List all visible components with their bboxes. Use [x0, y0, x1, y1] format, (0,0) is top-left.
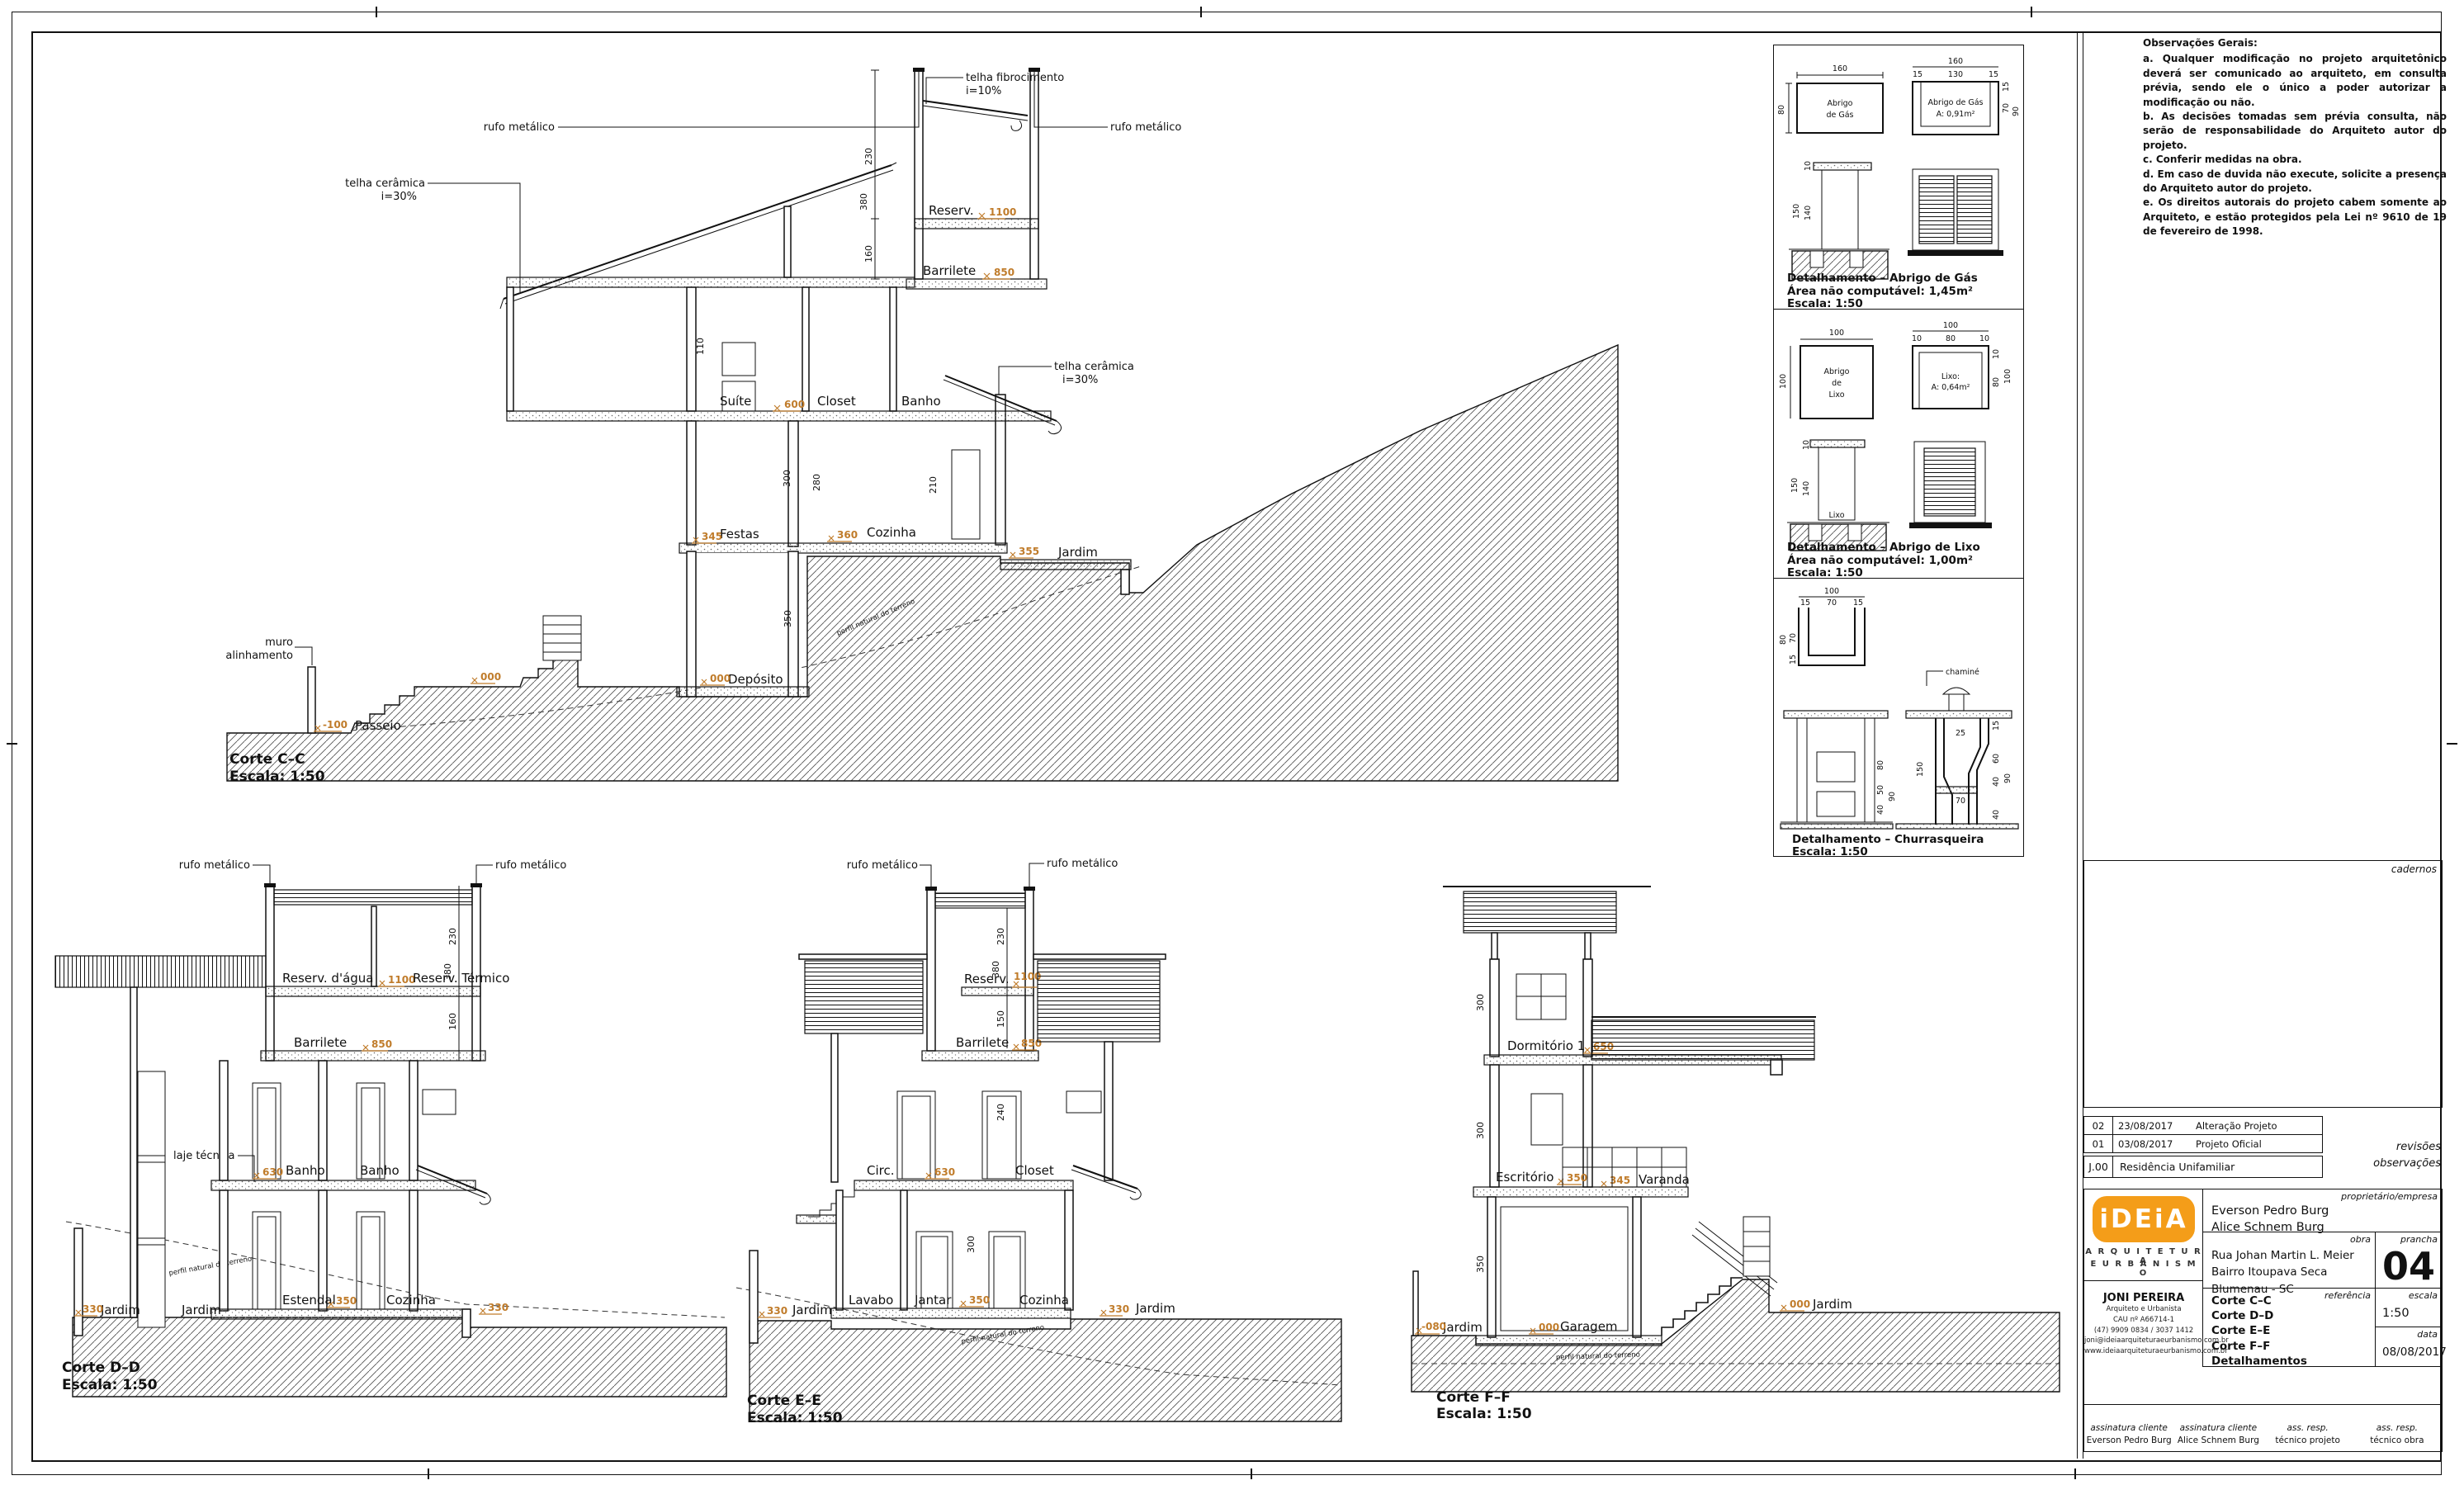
section-dd-drawing: perfil natural do terreno Reserv. d'água… [50, 858, 759, 1436]
section-title: Corte F–F [1436, 1389, 1511, 1406]
terrain-label: perfil natural do terreno [168, 1255, 253, 1278]
plan-label: Abrigo [1824, 367, 1850, 376]
roof-slats [935, 893, 1025, 908]
room-label: Estendal [282, 1293, 336, 1308]
level-marker: 1100 [378, 974, 415, 986]
svg-text:850: 850 [994, 267, 1014, 278]
data-value: 08/08/2017 [2382, 1345, 2447, 1359]
reserv-slab [266, 986, 480, 996]
tower-wall [927, 889, 935, 1051]
panel-divider [2077, 31, 2083, 1459]
room-label: Reserv. Térmico [413, 971, 509, 986]
revision-desc: Projeto Oficial [2192, 1138, 2322, 1150]
svg-text:1100: 1100 [989, 206, 1016, 218]
svg-text:350: 350 [336, 1295, 357, 1307]
dim: 40 [1876, 805, 1885, 815]
signature-name: Alice Schnem Burg [2178, 1435, 2259, 1447]
room-label: Barrilete [923, 263, 976, 278]
dim: 80 [1946, 334, 1956, 343]
section-ee-drawing: perfil natural do terreno Reserv. 1100 B… [726, 858, 1370, 1453]
obra-line: Rua Johan Martin L. Meier [2211, 1247, 2354, 1264]
roof-label: i=30% [381, 191, 417, 203]
dim: 230 [863, 148, 874, 165]
floor-slab [679, 543, 1007, 553]
detail-churrasqueira-drawing: 100 15 70 15 80 70 15 chaminé 25 150 15 … [1774, 579, 2023, 856]
frame-tick [1251, 1468, 1252, 1479]
floor-slab [1473, 1187, 1688, 1197]
room-label: Banho [360, 1163, 400, 1178]
floor-slab [211, 1309, 471, 1319]
chamine-label: chaminé [1946, 668, 1979, 677]
signature-name: Everson Pedro Burg [2087, 1435, 2172, 1447]
frame-tick [376, 7, 377, 17]
signatures-row: assinatura cliente Everson Pedro Burg as… [2084, 1404, 2442, 1452]
level-marker: 330 [1100, 1303, 1129, 1316]
room-label: Depósito [728, 672, 783, 687]
level-marker: 345 [1600, 1175, 1630, 1187]
tower-wall [1490, 959, 1499, 1057]
level-marker: 350 [959, 1294, 990, 1307]
section-cc-drawing: perfil natural do terreno muro alinhamen… [215, 58, 1634, 830]
svg-text:-100: -100 [323, 719, 348, 731]
exterior-stair [543, 616, 581, 660]
beam [1771, 1060, 1782, 1075]
dim: 210 [928, 476, 939, 494]
obra-line: Bairro Itoupava Seca [2211, 1264, 2354, 1280]
title-block: iDEiA A R Q U I T E T U R A E U R B A N … [2083, 1189, 2443, 1452]
level-marker: 330 [758, 1305, 787, 1317]
room-label: Barrilete [294, 1035, 347, 1050]
level-marker: 630 [925, 1166, 955, 1179]
plan-label: Lixo [1828, 390, 1844, 400]
dim: 130 [1948, 70, 1963, 79]
plan-label: de Gás [1826, 111, 1853, 120]
roof-label: telha cerâmica [1054, 361, 1134, 373]
jardim-slab [1000, 560, 1131, 570]
wall [1633, 1197, 1641, 1337]
dim: 15 [2002, 82, 2011, 92]
dim: 15 [1913, 70, 1922, 79]
signature-cell: ass. resp. técnico projeto [2263, 1405, 2353, 1452]
wall [507, 287, 513, 411]
data-label: data [2417, 1329, 2438, 1340]
svg-text:350: 350 [969, 1294, 990, 1306]
dim: 25 [1956, 729, 1965, 738]
roof-label: i=30% [1062, 374, 1098, 386]
level-marker: 000 [1780, 1298, 1810, 1311]
room-label: Suíte [720, 394, 751, 409]
room-label: Jardim [181, 1303, 221, 1317]
signature-name: técnico projeto [2275, 1435, 2340, 1447]
dim: 80 [1779, 635, 1788, 645]
room-label: Jardim [1812, 1297, 1852, 1312]
room-label: Jardim [792, 1303, 832, 1317]
svg-text:350: 350 [1567, 1172, 1587, 1184]
room-label: Reserv. [929, 203, 974, 218]
obra-cell: obra Rua Johan Martin L. Meier Bairro It… [2203, 1232, 2376, 1289]
roof-slats [1464, 891, 1616, 933]
escala-cell: escala 1:50 [2376, 1289, 2442, 1327]
dim: 15 [1789, 655, 1798, 664]
deposito-room [696, 553, 788, 687]
terrain-dd [73, 1317, 726, 1397]
dim: 350 [1475, 1256, 1486, 1273]
referencia-item: Corte F–F [2211, 1339, 2307, 1354]
svg-text:000: 000 [480, 671, 501, 683]
pergola-slats [1591, 1020, 1814, 1060]
room-label: Banho [901, 394, 941, 409]
signature-label: ass. resp. [2377, 1422, 2418, 1435]
detail-caption: Detalhamento – Churrasqueira [1792, 833, 1984, 846]
detail-caption: Escala: 1:50 [1787, 566, 1863, 579]
floor-slab [211, 1180, 475, 1190]
signature-label: assinatura cliente [2180, 1422, 2258, 1435]
data-cell: data 08/08/2017 [2376, 1327, 2442, 1367]
frame-tick [2031, 7, 2032, 17]
dim: 15 [1853, 598, 1863, 608]
dim: 15 [1800, 598, 1810, 608]
revision-desc: Alteração Projeto [2192, 1120, 2322, 1132]
detail-box-churrasqueira: 100 15 70 15 80 70 15 chaminé 25 150 15 … [1773, 578, 2024, 857]
signature-name: técnico obra [2370, 1435, 2424, 1447]
rufo-label: rufo metálico [1047, 858, 1118, 870]
room-label: Jardim [1442, 1320, 1483, 1335]
signature-label: assinatura cliente [2090, 1422, 2168, 1435]
logo-subtitle: E U R B A N I S M O [2084, 1260, 2203, 1278]
svg-text:850: 850 [371, 1038, 392, 1050]
room-label: Jardim [1135, 1301, 1175, 1316]
referencia-label: referência [2324, 1290, 2371, 1301]
plan-label: de [1832, 379, 1842, 388]
dim: 80 [1876, 760, 1885, 770]
wall [831, 1033, 838, 1182]
dim: 15 [1989, 70, 1998, 79]
level-marker: 1100 [977, 206, 1016, 219]
observacoes-label: observações [2336, 1157, 2441, 1170]
room-label: Reserv. d'água [282, 971, 374, 986]
room-label: Jantar [914, 1293, 952, 1308]
dim: 50 [1876, 785, 1885, 795]
elevation-label: Lixo [1828, 511, 1844, 520]
roof-label: i=10% [966, 85, 1001, 97]
detail-gas-drawing: 160 80 Abrigo de Gás 160 15 130 15 Abrig… [1774, 45, 2023, 310]
muro-label: alinhamento [225, 650, 293, 662]
svg-text:000: 000 [1790, 1298, 1810, 1310]
detail-caption: Escala: 1:50 [1792, 845, 1868, 856]
detail-caption: Área não computável: 1,45m² [1787, 284, 1973, 298]
svg-text:630: 630 [262, 1166, 283, 1178]
room-label: Barrilete [956, 1035, 1009, 1050]
frame-tick [1200, 7, 1202, 17]
dim: 80 [1777, 105, 1786, 115]
logo-cell: iDEiA A R Q U I T E T U R A E U R B A N … [2084, 1189, 2203, 1367]
retaining-wall [750, 1251, 758, 1343]
owner-label: proprietário/empresa [2341, 1191, 2438, 1202]
detail-box-gas: 160 80 Abrigo de Gás 160 15 130 15 Abrig… [1773, 45, 2024, 310]
revision-index: 01 [2084, 1135, 2113, 1152]
observation-item: d. Em caso de duvida não execute, solici… [2143, 168, 2447, 196]
plan-label: Abrigo [1828, 99, 1853, 108]
svg-text:345: 345 [1610, 1175, 1630, 1186]
architect-phone: (47) 9909 0834 / 3037 1412 [2084, 1326, 2203, 1336]
level-marker: 355 [1009, 546, 1039, 558]
stairs [797, 1190, 854, 1223]
dim: 300 [782, 470, 792, 487]
section-scale: Escala: 1:50 [229, 769, 325, 785]
escala-label: escala [2409, 1290, 2438, 1301]
dim: 100 [2003, 369, 2012, 384]
dim: 230 [447, 928, 458, 945]
dim: 110 [695, 338, 706, 355]
referencia-item: Corte E–E [2211, 1323, 2307, 1338]
retaining-wall [74, 1228, 83, 1336]
laje-tecnica-shelves [138, 1071, 165, 1327]
dim: 10 [1804, 161, 1813, 171]
level-marker: 850 [982, 267, 1014, 279]
room-label: Festas [720, 527, 759, 542]
eave [799, 954, 927, 959]
barrilete-slab [906, 279, 1047, 289]
room-label: Reserv. [964, 972, 1010, 986]
room-label: Passeio [355, 718, 401, 733]
svg-text:330: 330 [488, 1302, 508, 1313]
detail-caption: Área não computável: 1,00m² [1787, 553, 1973, 567]
wall [462, 1309, 471, 1337]
wall-muro [308, 667, 315, 733]
dim: 10 [1979, 334, 1989, 343]
room-label: Lavabo [849, 1293, 893, 1308]
observations-title: Observações Gerais: [2143, 36, 2447, 50]
level-marker: 600 [773, 399, 805, 411]
brise [805, 961, 923, 1033]
detail-lixo-drawing: 100 100 Abrigo de Lixo 100 10 80 10 Lixo… [1774, 310, 2023, 579]
dim: 100 [1943, 321, 1958, 330]
referencia-cell: referência Corte C–C Corte D–D Corte E–E… [2203, 1289, 2376, 1367]
architect-site: www.ideiaarquiteturaeurbanismo.com.br [2084, 1346, 2203, 1357]
sheet-number: 04 [2376, 1244, 2442, 1289]
wall [1490, 1065, 1499, 1187]
signature-cell: assinatura cliente Alice Schnem Burg [2173, 1405, 2263, 1452]
dim: 150 [1792, 204, 1801, 219]
dim: 70 [1827, 598, 1837, 608]
floor-slab [854, 1180, 1073, 1190]
floor-slab [1476, 1336, 1662, 1345]
dim: 90 [2012, 106, 2021, 116]
dim: 380 [858, 193, 869, 210]
post [1585, 933, 1591, 959]
section-scale: Escala: 1:50 [62, 1377, 158, 1393]
dim: 280 [811, 474, 822, 491]
barrilete-slab [261, 1051, 485, 1061]
room-label: Cozinha [386, 1293, 436, 1308]
obra-label: obra [2350, 1234, 2371, 1245]
observation-item: a. Qualquer modificação no projeto arqui… [2143, 52, 2447, 110]
roof-label: telha cerâmica [345, 177, 425, 190]
dim: 160 [1948, 57, 1963, 66]
svg-text:1100: 1100 [1014, 971, 1041, 982]
cadernos-box: cadernos [2083, 860, 2443, 1108]
rufo-label: rufo metálico [484, 121, 555, 134]
wall [687, 421, 696, 545]
revision-date: 03/08/2017 [2113, 1138, 2192, 1150]
roof-post [784, 206, 791, 277]
room-label: Circ. [867, 1163, 895, 1178]
wall [687, 551, 696, 697]
muro-label: muro [265, 636, 293, 649]
section-title: Corte C–C [229, 751, 305, 768]
signature-cell: assinatura cliente Everson Pedro Burg [2084, 1405, 2173, 1452]
revision-date: 23/08/2017 [2113, 1120, 2192, 1132]
dim: 100 [1829, 329, 1844, 338]
frame-tick [428, 1468, 429, 1479]
wall [1104, 1042, 1113, 1180]
level-marker: 350 [1557, 1172, 1587, 1185]
section-ff-drawing: perfil natural do terreno 300 Dormitório… [1403, 867, 2064, 1420]
roof-label: telha fibrocimento [966, 72, 1064, 84]
level-marker: -080 [1415, 1321, 1446, 1334]
dim: 60 [1992, 754, 2001, 764]
detail-caption: Detalhamento – Abrigo de Lixo [1787, 541, 1980, 554]
dim: 300 [1475, 994, 1486, 1011]
tower-wall [1025, 889, 1033, 1051]
architect-name: JONI PEREIRA [2084, 1292, 2203, 1304]
observation-item: b. As decisões tomadas sem prévia consul… [2143, 110, 2447, 153]
room-label: Closet [1015, 1163, 1054, 1178]
owner-name: Everson Pedro Burg [2211, 1203, 2329, 1219]
level-marker: 000 [1529, 1322, 1559, 1334]
room-label: Banho [286, 1163, 325, 1178]
post [1413, 1271, 1418, 1336]
roof-slats [274, 890, 472, 905]
rufo-label: rufo metálico [495, 859, 566, 872]
room-label: Escritório [1496, 1170, 1554, 1185]
svg-text:345: 345 [702, 531, 722, 542]
frame-tick [2074, 1468, 2076, 1479]
dim: 160 [863, 245, 874, 262]
dim: 90 [1888, 792, 1897, 802]
dim: 15 [1992, 721, 2001, 731]
dim: 90 [2003, 773, 2012, 783]
referencia-item: Detalhamentos [2211, 1354, 2307, 1369]
rufo-label: rufo metálico [847, 859, 918, 872]
post [1492, 933, 1497, 959]
level-marker: -100 [314, 719, 348, 731]
dim: 100 [1779, 374, 1788, 389]
pergola-slats [55, 956, 266, 987]
section-scale: Escala: 1:50 [747, 1410, 843, 1426]
dim: 70 [2002, 103, 2011, 113]
tower-wall [266, 886, 274, 1061]
signature-cell: ass. resp. técnico obra [2353, 1405, 2442, 1452]
detail-caption: Detalhamento – Abrigo de Gás [1787, 272, 1978, 285]
svg-text:330: 330 [767, 1305, 787, 1317]
wall [220, 1190, 228, 1311]
dim: 140 [1802, 481, 1811, 496]
dim: 10 [1912, 334, 1922, 343]
dim: 240 [996, 1104, 1006, 1121]
dim: 10 [1992, 349, 2001, 359]
project-title: Residência Unifamiliar [2113, 1156, 2322, 1177]
room-label: Jardim [1057, 545, 1098, 560]
room-label: Cozinha [1019, 1293, 1069, 1308]
revisions-table: 02 23/08/2017 Alteração Projeto 01 03/08… [2083, 1116, 2323, 1153]
dim: 150 [1790, 478, 1800, 493]
rufo-label: rufo metálico [1110, 121, 1181, 134]
dim: 300 [966, 1236, 977, 1253]
level-marker: 360 [827, 529, 858, 542]
ceiling-slab [507, 277, 915, 287]
detail-caption: Escala: 1:50 [1787, 297, 1863, 310]
dim: 140 [1804, 206, 1813, 220]
room-label: Jardim [100, 1303, 140, 1317]
svg-text:630: 630 [934, 1166, 955, 1178]
prancha-cell: prancha 04 [2376, 1232, 2442, 1289]
project-row: J.00 Residência Unifamiliar [2083, 1156, 2323, 1178]
wall [890, 287, 896, 411]
architect-email: joni@ideiaarquiteturaeurbanismo.com.br [2084, 1336, 2203, 1346]
signature-label: ass. resp. [2287, 1422, 2328, 1435]
svg-text:1100: 1100 [388, 974, 415, 986]
architect-cau: CAU nº A66714-1 [2084, 1315, 2203, 1326]
terrain-ee [750, 1319, 1341, 1421]
wall [1121, 570, 1129, 594]
section-label: Abrigo de Gás [1928, 98, 1984, 107]
room-label: Varanda [1639, 1172, 1690, 1187]
escala-value: 1:50 [2382, 1307, 2410, 1320]
svg-text:600: 600 [784, 399, 805, 410]
dim: 160 [1833, 64, 1847, 73]
frame-tick [7, 743, 17, 745]
svg-text:330: 330 [83, 1303, 103, 1315]
barrilete-slab [922, 1051, 1038, 1061]
post [130, 987, 137, 1317]
brise [1038, 961, 1160, 1042]
revision-row: 02 23/08/2017 Alteração Projeto [2084, 1117, 2322, 1135]
svg-text:000: 000 [1539, 1322, 1559, 1333]
observation-item: c. Conferir medidas na obra. [2143, 153, 2447, 167]
cadernos-label: cadernos [2391, 863, 2437, 875]
section-title: Corte D–D [62, 1360, 140, 1376]
room-label: Dormitório 1 [1507, 1038, 1585, 1053]
floor-slab [507, 411, 1051, 421]
architect-block: JONI PEREIRA Arquiteto e Urbanista CAU n… [2084, 1280, 2203, 1357]
floor-slab [831, 1308, 1071, 1318]
section-title: Corte E–E [747, 1393, 821, 1409]
observations-block: Observações Gerais: a. Qualquer modifica… [2143, 36, 2447, 239]
room-label: Cozinha [867, 525, 916, 540]
svg-text:330: 330 [1109, 1303, 1129, 1315]
referencia-item: Corte C–C [2211, 1293, 2307, 1308]
svg-text:355: 355 [1019, 546, 1039, 557]
svg-text:-080: -080 [1421, 1321, 1446, 1332]
dim: 300 [1475, 1122, 1486, 1139]
wall [409, 1061, 418, 1180]
dim: 150 [1916, 762, 1925, 777]
level-marker: 330 [479, 1302, 508, 1314]
section-label: A: 0,91m² [1937, 110, 1975, 119]
rufo-label: rufo metálico [179, 859, 250, 872]
dim: 350 [783, 610, 793, 627]
eave [1033, 954, 1166, 959]
reserv-slab [915, 219, 1038, 229]
revision-index: 02 [2084, 1117, 2113, 1134]
section-label: Lixo: [1941, 372, 1960, 381]
wall [220, 1061, 228, 1180]
dim: 40 [1992, 777, 2001, 787]
dim: 150 [996, 1010, 1006, 1028]
level-marker: 000 [471, 671, 501, 683]
svg-text:360: 360 [837, 529, 858, 541]
